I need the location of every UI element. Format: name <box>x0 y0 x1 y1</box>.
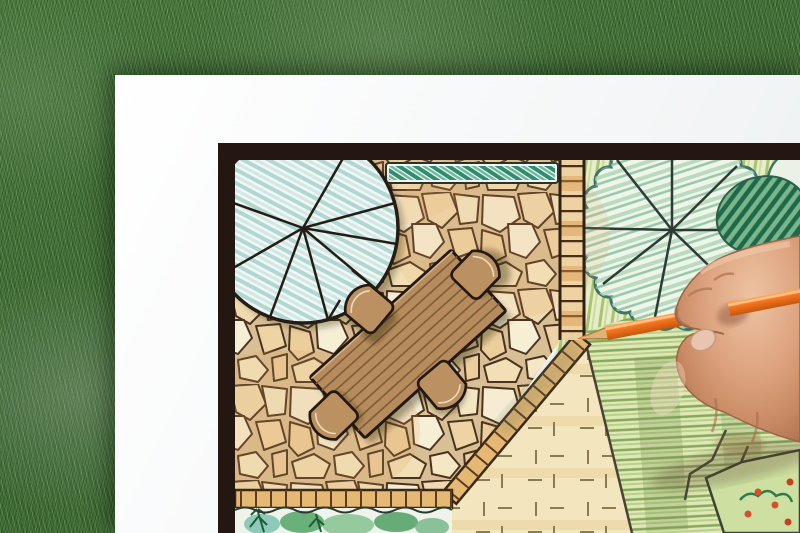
hedge <box>386 163 558 183</box>
planting-bed <box>235 508 452 533</box>
garden-plan-drawing <box>0 0 800 533</box>
photo-canvas <box>0 0 800 533</box>
